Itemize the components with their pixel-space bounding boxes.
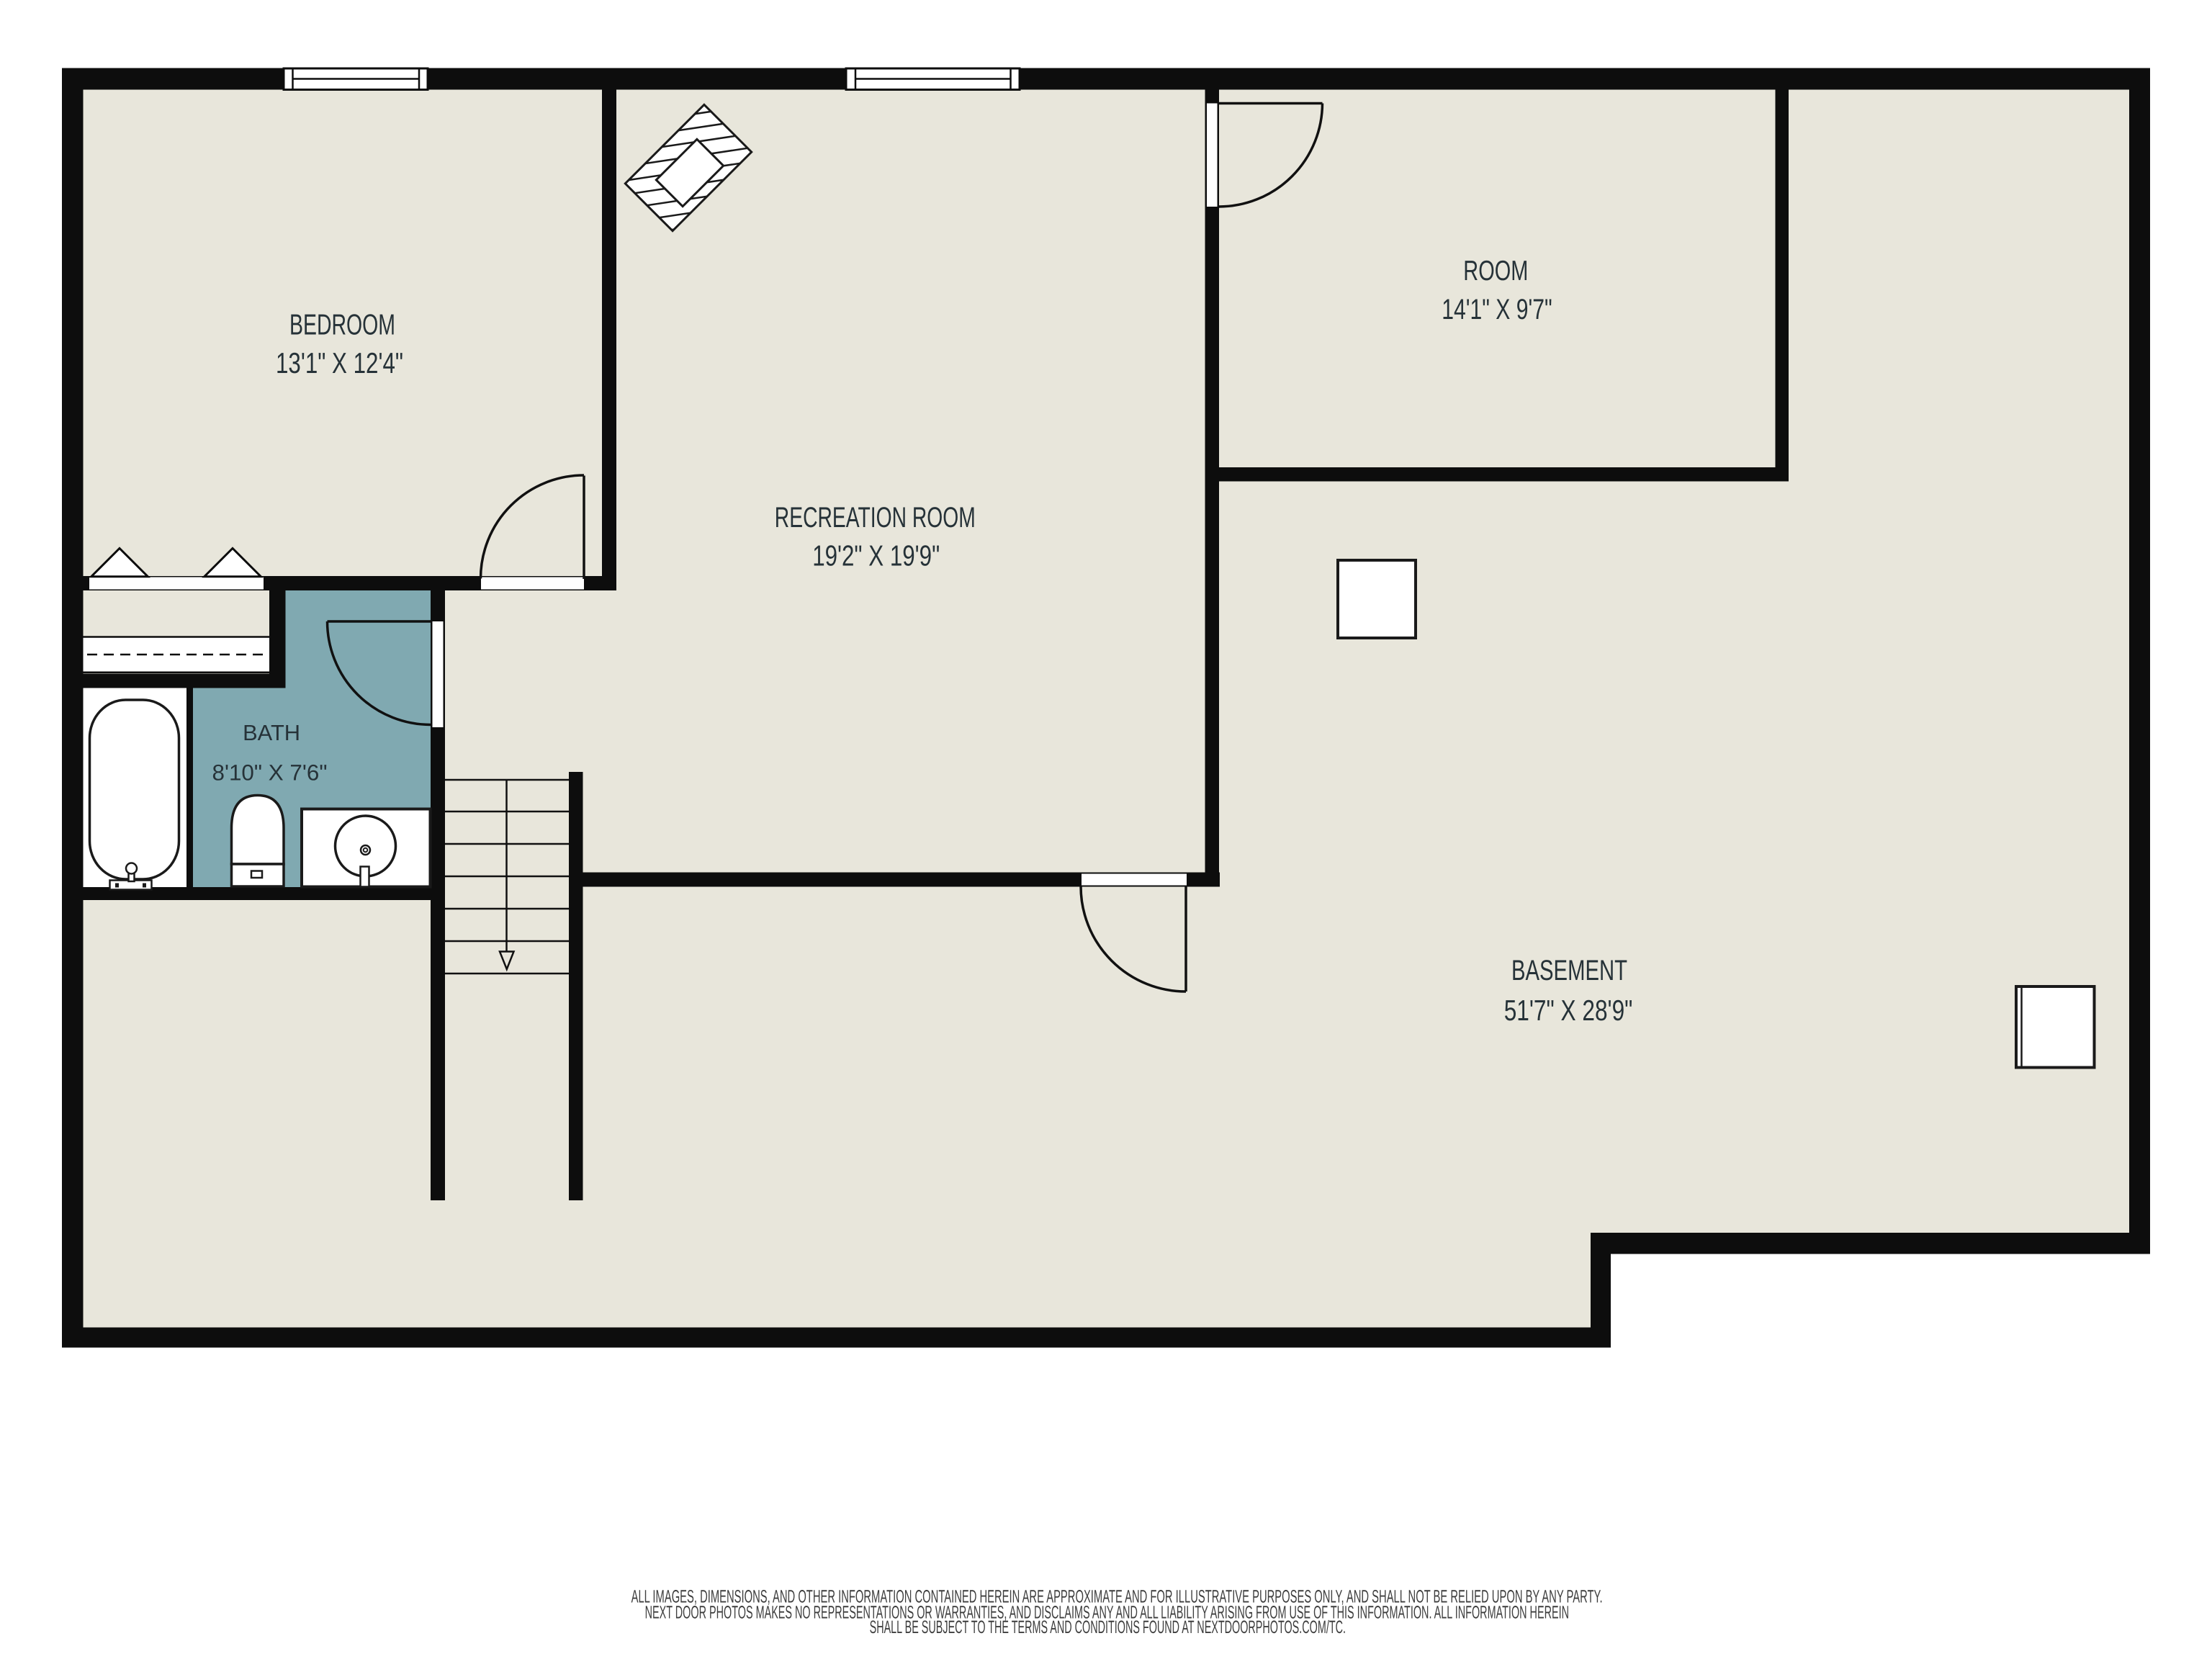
svg-text:BATH: BATH	[243, 721, 300, 745]
svg-text:19'2" X 19'9": 19'2" X 19'9"	[812, 539, 940, 572]
svg-text:51'7" X 28'9": 51'7" X 28'9"	[1504, 994, 1633, 1027]
svg-text:8'10" X 7'6": 8'10" X 7'6"	[212, 760, 328, 786]
svg-text:ROOM: ROOM	[1463, 256, 1528, 287]
svg-text:13'1" X 12'4": 13'1" X 12'4"	[276, 346, 403, 379]
svg-text:RECREATION ROOM: RECREATION ROOM	[775, 502, 976, 534]
svg-text:BASEMENT: BASEMENT	[1511, 955, 1627, 986]
svg-text:14'1" X 9'7": 14'1" X 9'7"	[1442, 294, 1552, 325]
svg-text:SHALL BE SUBJECT TO THE TERMS: SHALL BE SUBJECT TO THE TERMS AND CONDIT…	[870, 1617, 1346, 1637]
svg-text:BEDROOM: BEDROOM	[289, 307, 395, 341]
